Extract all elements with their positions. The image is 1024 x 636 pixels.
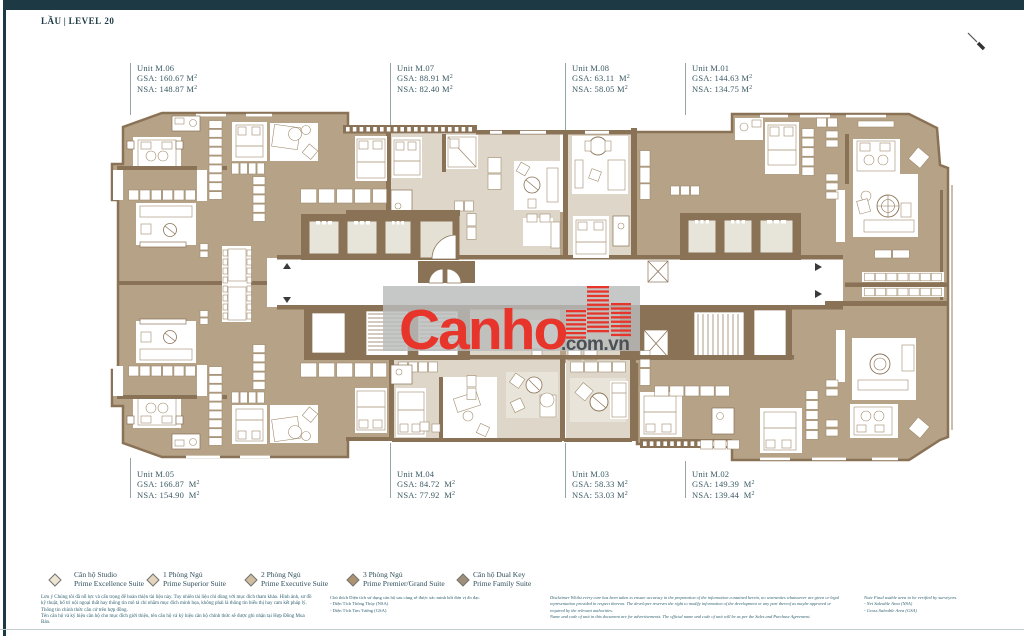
svg-text:Canho: Canho	[399, 298, 567, 362]
svg-text:.com.vn: .com.vn	[561, 334, 629, 355]
